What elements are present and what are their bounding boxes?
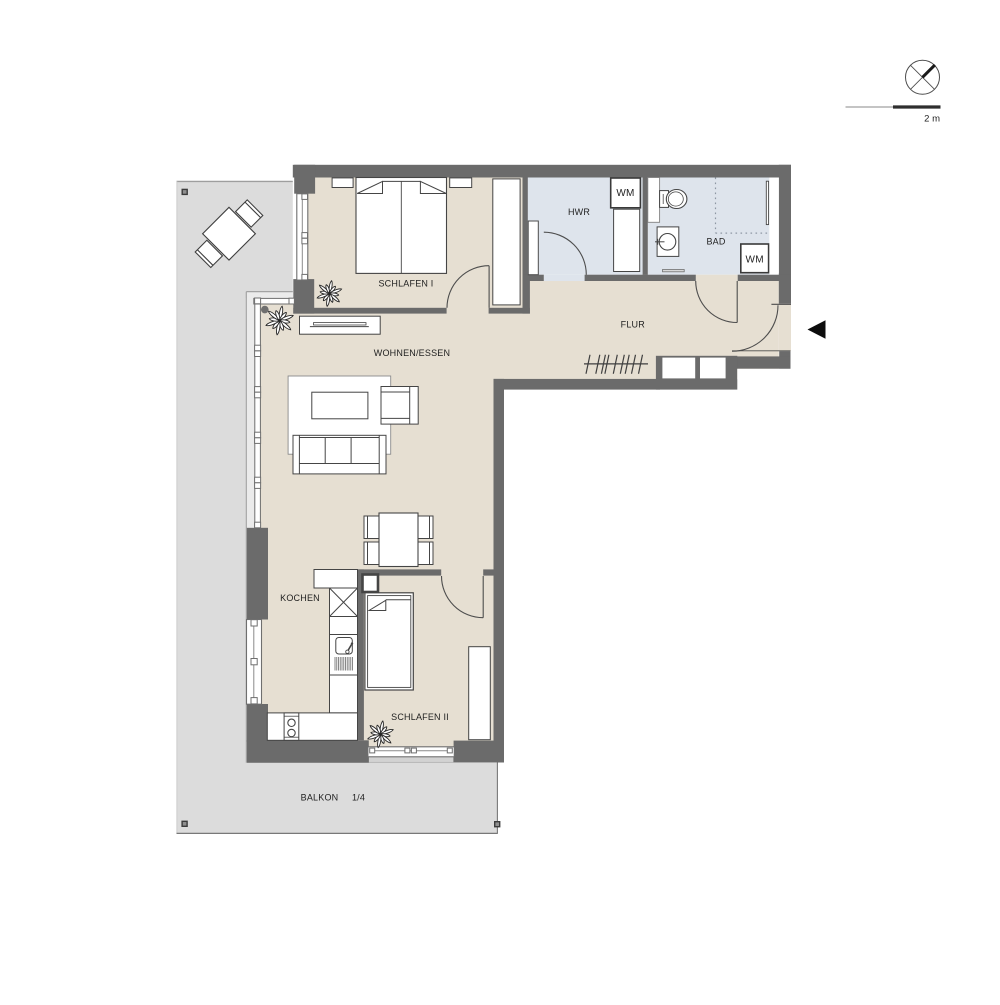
- svg-text:BAD: BAD: [706, 237, 725, 247]
- svg-text:FLUR: FLUR: [621, 320, 646, 330]
- svg-text:SCHLAFEN I: SCHLAFEN I: [378, 279, 433, 289]
- svg-text:WM: WM: [746, 254, 764, 265]
- svg-text:BALKON: BALKON: [301, 793, 339, 803]
- svg-text:1/4: 1/4: [352, 793, 365, 803]
- svg-text:WM: WM: [616, 188, 634, 199]
- svg-text:HWR: HWR: [568, 207, 590, 217]
- svg-text:KOCHEN: KOCHEN: [280, 593, 320, 603]
- svg-text:2 m: 2 m: [924, 113, 940, 124]
- svg-text:SCHLAFEN II: SCHLAFEN II: [391, 712, 449, 722]
- svg-text:WOHNEN/ESSEN: WOHNEN/ESSEN: [374, 348, 450, 358]
